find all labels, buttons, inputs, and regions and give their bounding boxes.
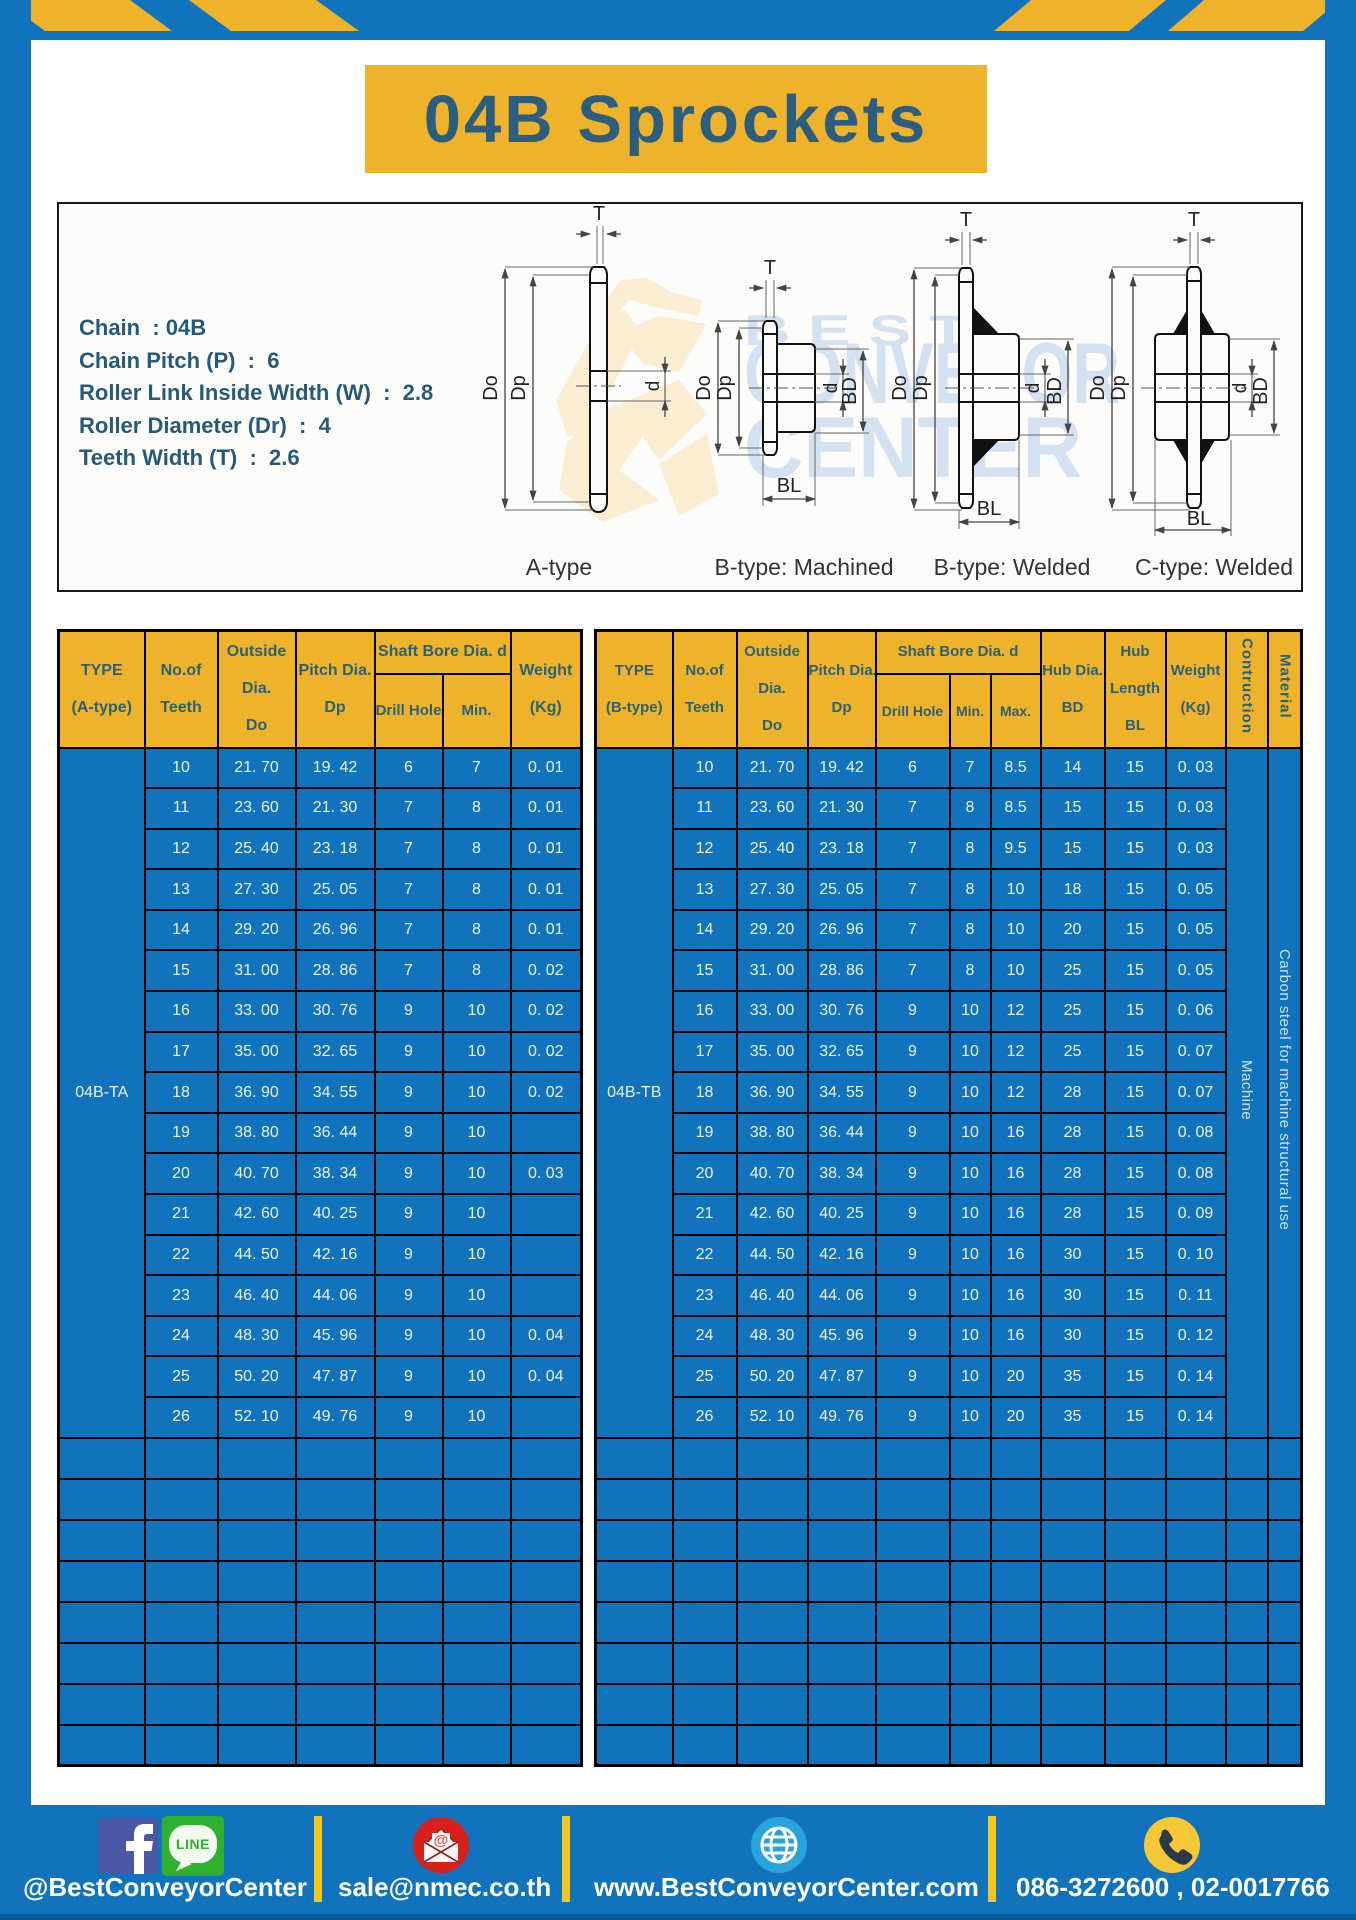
svg-text:@: @ xyxy=(434,1832,449,1849)
svg-text:BL: BL xyxy=(1187,508,1211,530)
svg-text:T: T xyxy=(764,257,776,279)
svg-text:BL: BL xyxy=(777,475,801,497)
svg-text:Do: Do xyxy=(480,375,502,401)
svg-text:T: T xyxy=(1188,209,1200,231)
svg-text:B-type: Welded: B-type: Welded xyxy=(934,554,1091,580)
svg-text:LINE: LINE xyxy=(176,1836,210,1852)
svg-text:C-type: Welded: C-type: Welded xyxy=(1135,554,1293,580)
svg-text:T: T xyxy=(960,209,972,231)
svg-text:d: d xyxy=(643,381,664,392)
svg-text:Dp: Dp xyxy=(910,375,932,401)
svg-text:d: d xyxy=(1230,383,1251,394)
svg-text:Dp: Dp xyxy=(1108,375,1130,401)
svg-text:B-type: Machined: B-type: Machined xyxy=(715,554,894,580)
svg-text:BD: BD xyxy=(1250,377,1272,405)
svg-text:BD: BD xyxy=(839,377,861,405)
svg-text:d: d xyxy=(1023,383,1044,394)
svg-text:A-type: A-type xyxy=(526,554,592,580)
svg-text:T: T xyxy=(593,204,605,225)
svg-text:Dp: Dp xyxy=(714,375,736,401)
svg-text:Do: Do xyxy=(1087,375,1109,401)
svg-text:Dp: Dp xyxy=(508,375,530,401)
svg-text:BL: BL xyxy=(977,498,1001,520)
svg-text:Do: Do xyxy=(889,375,911,401)
svg-text:BD: BD xyxy=(1044,377,1066,405)
svg-text:Do: Do xyxy=(693,375,715,401)
